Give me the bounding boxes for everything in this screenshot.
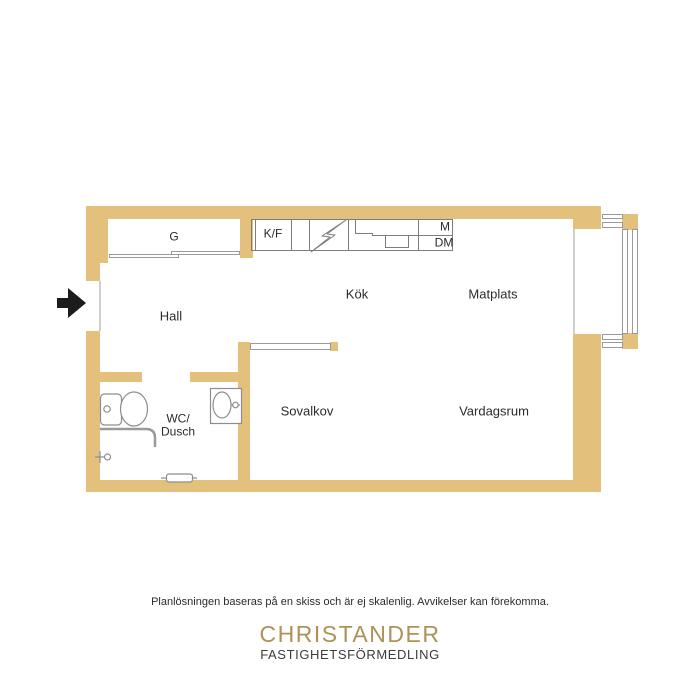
label-microwave: M <box>440 220 450 233</box>
label-sleeping-alcove: Sovalkov <box>281 405 334 420</box>
entrance-arrow-icon <box>57 288 86 318</box>
shower-rod <box>100 429 155 447</box>
fixtures-layer <box>0 0 700 700</box>
shower-icon <box>95 451 111 463</box>
label-wardrobe: G <box>169 230 178 243</box>
label-bathroom-line2: Dusch <box>161 426 195 439</box>
brand-logo-subtitle: FASTIGHETSFÖRMEDLING <box>0 647 700 662</box>
label-kitchen: Kök <box>346 288 368 303</box>
label-bathroom-line1: WC/ <box>161 413 195 426</box>
floor-plan-page: G K/F M DM Kök Matplats Hall WC/ Dusch S… <box>0 0 700 700</box>
toilet-icon <box>101 392 148 426</box>
label-bathroom: WC/ Dusch <box>161 413 195 440</box>
label-living-room: Vardagsrum <box>459 405 529 420</box>
radiator-icon <box>161 474 197 482</box>
label-dining: Matplats <box>468 288 517 303</box>
brand-logo-name: CHRISTANDER <box>0 621 700 648</box>
label-hall: Hall <box>160 310 182 325</box>
stove-lightning-bolt-icon <box>311 220 346 252</box>
label-dishwasher: DM <box>435 236 454 249</box>
label-fridge-freezer: K/F <box>264 227 283 240</box>
sink-icon <box>211 389 242 424</box>
disclaimer-text: Planlösningen baseras på en skiss och är… <box>0 596 700 608</box>
kitchen-sink-basin <box>386 236 409 248</box>
